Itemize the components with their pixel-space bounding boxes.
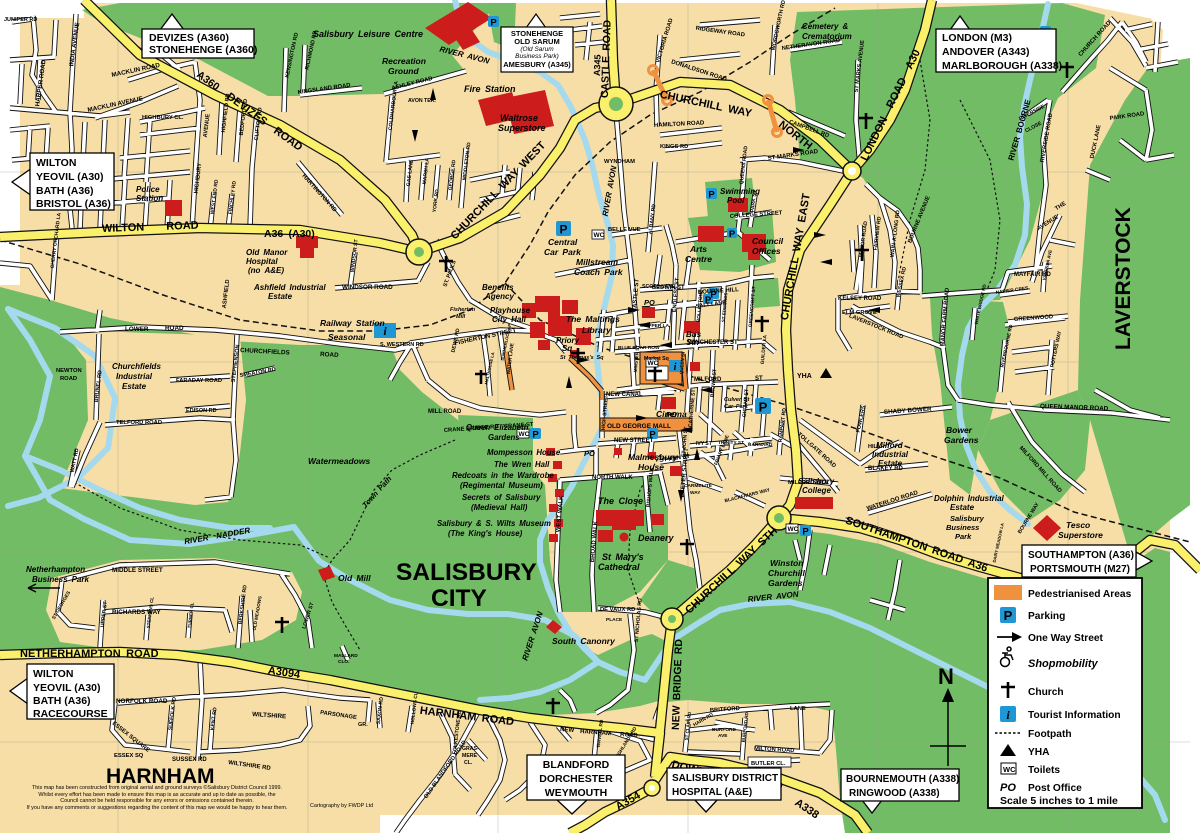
svg-text:SALISBURY DISTRICT: SALISBURY DISTRICT xyxy=(672,773,778,784)
svg-text:Ground: Ground xyxy=(388,66,419,76)
svg-text:WC: WC xyxy=(788,526,799,533)
svg-text:ROAD: ROAD xyxy=(320,351,339,359)
svg-text:Superstore: Superstore xyxy=(1058,530,1103,540)
svg-text:KELSEY ROAD: KELSEY ROAD xyxy=(838,296,882,302)
svg-text:P: P xyxy=(759,400,768,415)
svg-text:Railway Station: Railway Station xyxy=(320,318,385,328)
svg-text:SUSSEX RD: SUSSEX RD xyxy=(172,757,207,763)
svg-text:Parking: Parking xyxy=(1028,611,1065,622)
svg-text:LANE: LANE xyxy=(790,706,806,712)
svg-text:Estate: Estate xyxy=(950,503,975,512)
svg-text:Salisbury: Salisbury xyxy=(798,477,835,486)
svg-text:Recreation: Recreation xyxy=(382,56,426,66)
svg-text:Cartography by FWDP Ltd: Cartography by FWDP Ltd xyxy=(310,803,373,809)
svg-text:Estate: Estate xyxy=(268,292,293,301)
svg-text:Old Manor: Old Manor xyxy=(246,248,288,257)
svg-text:Ashfield Industrial: Ashfield Industrial xyxy=(253,283,326,292)
svg-text:Bower: Bower xyxy=(946,425,973,435)
svg-text:Scale 5 inches to 1 mile: Scale 5 inches to 1 mile xyxy=(1000,795,1118,807)
svg-text:Station: Station xyxy=(136,194,163,203)
svg-text:Pedestrianised Areas: Pedestrianised Areas xyxy=(1028,589,1132,600)
svg-text:EDISON RD: EDISON RD xyxy=(186,408,217,414)
svg-text:NEW STREET: NEW STREET xyxy=(614,438,654,444)
svg-text:P: P xyxy=(559,223,567,237)
svg-text:NEWTON: NEWTON xyxy=(56,368,82,374)
svg-text:Market Sq: Market Sq xyxy=(644,356,669,362)
svg-text:Milford: Milford xyxy=(876,441,904,450)
svg-text:LONDON (M3): LONDON (M3) xyxy=(942,32,1012,44)
svg-text:CLO.: CLO. xyxy=(338,659,349,665)
svg-text:HIGHBURY CL.: HIGHBURY CL. xyxy=(142,115,184,121)
svg-text:Car Park: Car Park xyxy=(544,247,582,257)
svg-text:WILTON: WILTON xyxy=(33,668,73,680)
svg-text:WC: WC xyxy=(519,431,530,438)
svg-text:Tesco: Tesco xyxy=(1066,520,1090,530)
svg-text:Coach Park: Coach Park xyxy=(574,267,624,277)
svg-text:Fire Station: Fire Station xyxy=(464,84,516,94)
svg-text:MILFORD: MILFORD xyxy=(694,377,722,383)
svg-text:St Mary's: St Mary's xyxy=(602,552,644,562)
svg-text:GR.: GR. xyxy=(358,722,368,728)
svg-text:The Wren Hall: The Wren Hall xyxy=(494,460,550,469)
svg-text:Library: Library xyxy=(582,325,612,335)
svg-text:P: P xyxy=(490,18,497,29)
svg-text:DE VAUX RD: DE VAUX RD xyxy=(600,607,635,613)
svg-text:Playhouse: Playhouse xyxy=(490,306,531,315)
svg-text:CITY: CITY xyxy=(431,585,487,612)
svg-text:Business: Business xyxy=(946,523,979,532)
svg-text:Crematorium: Crematorium xyxy=(802,32,852,41)
svg-text:OLD SARUM: OLD SARUM xyxy=(514,37,559,46)
svg-text:Dolphin Industrial: Dolphin Industrial xyxy=(934,494,1005,503)
svg-text:BUTLER CL.: BUTLER CL. xyxy=(751,761,786,767)
svg-text:The Maltings: The Maltings xyxy=(566,314,620,324)
svg-text:ROAD: ROAD xyxy=(60,376,77,382)
svg-text:Church: Church xyxy=(1028,687,1064,698)
svg-text:(no A&E): (no A&E) xyxy=(248,266,284,275)
svg-text:CL.: CL. xyxy=(464,760,473,766)
svg-text:CARMELITE: CARMELITE xyxy=(684,483,713,489)
svg-text:BARNARD: BARNARD xyxy=(748,442,773,448)
svg-text:Sq: Sq xyxy=(562,344,572,353)
svg-text:RICHARDS WAY: RICHARDS WAY xyxy=(112,609,162,616)
svg-text:Benefits: Benefits xyxy=(482,283,514,292)
svg-text:Agency: Agency xyxy=(484,292,514,301)
svg-text:AMESBURY (A345): AMESBURY (A345) xyxy=(503,60,571,69)
svg-text:NEW CANAL: NEW CANAL xyxy=(606,392,643,398)
svg-text:Cathedral: Cathedral xyxy=(598,562,640,572)
svg-text:SALISBURY: SALISBURY xyxy=(396,559,537,586)
svg-text:DEVIZES (A360): DEVIZES (A360) xyxy=(149,32,229,44)
svg-text:ANDOVER (A343): ANDOVER (A343) xyxy=(942,46,1030,58)
svg-text:The Close: The Close xyxy=(598,496,643,506)
svg-text:BRISTOL (A36): BRISTOL (A36) xyxy=(36,198,111,210)
svg-text:WC: WC xyxy=(1003,765,1016,774)
svg-text:Salisbury & S. Wilts Museum: Salisbury & S. Wilts Museum xyxy=(437,519,551,528)
svg-text:Central: Central xyxy=(548,237,578,247)
svg-text:KINGS RD: KINGS RD xyxy=(660,144,688,150)
svg-text:AVON TER.: AVON TER. xyxy=(408,98,436,104)
svg-text:Winston: Winston xyxy=(770,558,803,568)
svg-text:Swimming: Swimming xyxy=(720,187,760,196)
svg-text:PO: PO xyxy=(644,298,655,307)
svg-text:BELLE VUE: BELLE VUE xyxy=(608,227,641,233)
svg-text:Industrial: Industrial xyxy=(872,450,909,459)
svg-text:South Canonry: South Canonry xyxy=(552,636,616,646)
svg-text:ESSEX SQ: ESSEX SQ xyxy=(114,753,144,759)
svg-text:MERE: MERE xyxy=(462,753,478,759)
svg-text:NORTH WALK: NORTH WALK xyxy=(592,475,633,481)
svg-text:Old Mill: Old Mill xyxy=(338,573,371,583)
svg-text:Council cannot be held respons: Council cannot be held responsible for a… xyxy=(60,798,254,804)
svg-text:St Thomas's Sq: St Thomas's Sq xyxy=(560,355,604,361)
svg-text:MALLARD: MALLARD xyxy=(334,653,358,659)
svg-text:Business Park: Business Park xyxy=(32,575,89,584)
svg-text:BATH (A36): BATH (A36) xyxy=(36,185,94,197)
svg-text:PLACE: PLACE xyxy=(606,617,623,623)
svg-text:Car Park: Car Park xyxy=(724,404,749,410)
svg-text:CHIPPER LA.: CHIPPER LA. xyxy=(640,323,670,329)
svg-text:TELFORD ROAD: TELFORD ROAD xyxy=(116,420,162,426)
svg-text:i: i xyxy=(674,362,677,373)
svg-text:Salisbury: Salisbury xyxy=(950,514,985,523)
svg-text:Netherhampton: Netherhampton xyxy=(26,565,85,574)
svg-text:WC: WC xyxy=(594,232,605,239)
svg-text:Culver St: Culver St xyxy=(724,397,751,403)
svg-text:Fisherton: Fisherton xyxy=(450,307,476,313)
svg-text:NEW: NEW xyxy=(560,727,575,734)
svg-text:ST: ST xyxy=(755,376,763,382)
svg-text:Waltrose: Waltrose xyxy=(500,113,538,123)
svg-text:S. WESTERN RD: S. WESTERN RD xyxy=(380,342,424,348)
svg-text:Business Park): Business Park) xyxy=(515,53,559,60)
svg-text:If you have any comments or su: If you have any comments or suggestions … xyxy=(27,805,288,811)
svg-text:Superstore: Superstore xyxy=(498,123,546,133)
svg-text:College: College xyxy=(802,486,831,495)
svg-text:Toilets: Toilets xyxy=(1028,765,1060,776)
svg-text:YHA: YHA xyxy=(1028,747,1050,758)
svg-text:P: P xyxy=(532,430,539,441)
svg-text:Shopmobility: Shopmobility xyxy=(1028,658,1099,670)
svg-text:PORTSMOUTH (M27): PORTSMOUTH (M27) xyxy=(1030,564,1130,575)
svg-text:NETHERHAMPTON ROAD: NETHERHAMPTON ROAD xyxy=(20,648,159,660)
svg-text:Estate: Estate xyxy=(122,382,147,391)
svg-text:YHA: YHA xyxy=(797,373,812,380)
svg-text:Churchfields: Churchfields xyxy=(112,362,161,371)
svg-text:Tourist Information: Tourist Information xyxy=(1028,710,1121,721)
svg-text:YEOVIL (A30): YEOVIL (A30) xyxy=(33,682,101,694)
svg-text:Industrial: Industrial xyxy=(116,372,153,381)
svg-text:ROAD: ROAD xyxy=(620,732,639,739)
svg-text:Stn: Stn xyxy=(686,338,699,347)
svg-text:RINGWOOD (A338): RINGWOOD (A338) xyxy=(849,788,940,799)
svg-text:Redcoats in the Wardrobe: Redcoats in the Wardrobe xyxy=(452,471,554,480)
svg-text:Gardens: Gardens xyxy=(488,433,520,442)
svg-text:PO: PO xyxy=(1000,782,1016,794)
svg-text:WEYMOUTH: WEYMOUTH xyxy=(545,787,607,799)
svg-text:Queen Elizabeth: Queen Elizabeth xyxy=(466,423,529,432)
svg-text:JUNIPER RD: JUNIPER RD xyxy=(4,17,37,23)
svg-text:Centre: Centre xyxy=(685,254,712,264)
svg-text:FARADAY ROAD: FARADAY ROAD xyxy=(176,378,222,384)
svg-text:Deanery: Deanery xyxy=(638,533,675,543)
svg-text:LOWER: LOWER xyxy=(125,326,149,333)
svg-text:(Old Sarum: (Old Sarum xyxy=(520,46,554,53)
svg-text:This map has been constructed: This map has been constructed from origi… xyxy=(32,784,282,791)
svg-text:RACECOURSE: RACECOURSE xyxy=(33,708,108,720)
svg-text:NORFOLK ROAD: NORFOLK ROAD xyxy=(116,698,168,705)
svg-text:Watermeadows: Watermeadows xyxy=(308,456,370,466)
svg-text:LAVERSTOCK: LAVERSTOCK xyxy=(1112,207,1135,350)
svg-text:P: P xyxy=(729,229,736,240)
svg-text:Pool: Pool xyxy=(727,196,745,205)
svg-text:MILL ROAD: MILL ROAD xyxy=(428,409,462,415)
svg-text:AVE: AVE xyxy=(718,733,728,739)
svg-text:Police: Police xyxy=(136,185,160,194)
svg-text:WINDSOR ROAD: WINDSOR ROAD xyxy=(342,284,393,291)
svg-text:A36 (A30): A36 (A30) xyxy=(264,228,315,240)
svg-text:PO: PO xyxy=(666,410,677,419)
svg-text:Churchill: Churchill xyxy=(768,568,805,578)
svg-text:ELM GROVE: ELM GROVE xyxy=(842,310,877,316)
svg-text:STONEHENGE (A360): STONEHENGE (A360) xyxy=(149,44,257,56)
svg-text:MARLBOROUGH (A338): MARLBOROUGH (A338) xyxy=(942,60,1062,72)
svg-text:BOURNEMOUTH (A338): BOURNEMOUTH (A338) xyxy=(846,774,959,785)
svg-text:MIDDLE STREET: MIDDLE STREET xyxy=(112,567,163,574)
svg-text:One Way Street: One Way Street xyxy=(1028,633,1104,644)
svg-text:P: P xyxy=(708,190,715,201)
svg-text:YEOVIL (A30): YEOVIL (A30) xyxy=(36,171,104,183)
svg-text:Mill: Mill xyxy=(456,314,466,320)
svg-text:Cemetery &: Cemetery & xyxy=(802,22,848,31)
svg-text:SCOTS LANE: SCOTS LANE xyxy=(642,284,676,290)
svg-text:BLANDFORD: BLANDFORD xyxy=(543,759,610,771)
svg-text:House: House xyxy=(638,462,664,472)
svg-text:P: P xyxy=(802,527,809,538)
svg-text:ROAD: ROAD xyxy=(165,325,184,332)
svg-text:BATH (A36): BATH (A36) xyxy=(33,695,91,707)
svg-text:Seasonal: Seasonal xyxy=(328,332,366,342)
svg-text:Hospital: Hospital xyxy=(246,257,278,266)
svg-text:BURFORD: BURFORD xyxy=(712,727,737,733)
svg-text:Park: Park xyxy=(955,532,972,541)
svg-text:Arts: Arts xyxy=(689,244,707,254)
svg-text:City Hall: City Hall xyxy=(492,315,527,324)
svg-text:Council: Council xyxy=(752,236,784,246)
svg-text:Offices: Offices xyxy=(752,246,781,256)
svg-text:A345: A345 xyxy=(592,54,603,76)
svg-text:Mompesson House: Mompesson House xyxy=(487,448,561,457)
svg-text:N: N xyxy=(938,664,954,689)
svg-text:Footpath: Footpath xyxy=(1028,729,1072,740)
svg-text:WILTON: WILTON xyxy=(36,157,76,169)
svg-text:Gardens: Gardens xyxy=(768,578,803,588)
svg-text:DORCHESTER: DORCHESTER xyxy=(539,773,613,785)
svg-text:Secrets of Salisbury: Secrets of Salisbury xyxy=(462,493,541,502)
svg-text:OLD GEORGE MALL: OLD GEORGE MALL xyxy=(607,423,671,430)
svg-text:WYNDHAM: WYNDHAM xyxy=(604,159,635,165)
svg-text:PO: PO xyxy=(584,449,595,458)
svg-text:Post Office: Post Office xyxy=(1028,783,1082,794)
svg-text:Salisbury Leisure Centre: Salisbury Leisure Centre xyxy=(313,29,423,39)
svg-text:HOSPITAL (A&E): HOSPITAL (A&E) xyxy=(672,787,752,798)
svg-text:P: P xyxy=(1004,608,1013,623)
svg-text:SOUTHAMPTON (A36): SOUTHAMPTON (A36) xyxy=(1028,550,1134,561)
svg-text:Malmesbury: Malmesbury xyxy=(628,452,679,462)
svg-text:IVY ST: IVY ST xyxy=(696,441,712,447)
svg-text:(Regimental Museum): (Regimental Museum) xyxy=(460,481,543,490)
svg-text:Gardens: Gardens xyxy=(944,435,979,445)
svg-text:Estate: Estate xyxy=(878,459,903,468)
svg-text:(The King's House): (The King's House) xyxy=(448,529,523,538)
svg-text:WAY: WAY xyxy=(690,490,701,496)
svg-text:Millstream: Millstream xyxy=(576,257,618,267)
svg-text:(Medieval Hall): (Medieval Hall) xyxy=(471,503,528,512)
